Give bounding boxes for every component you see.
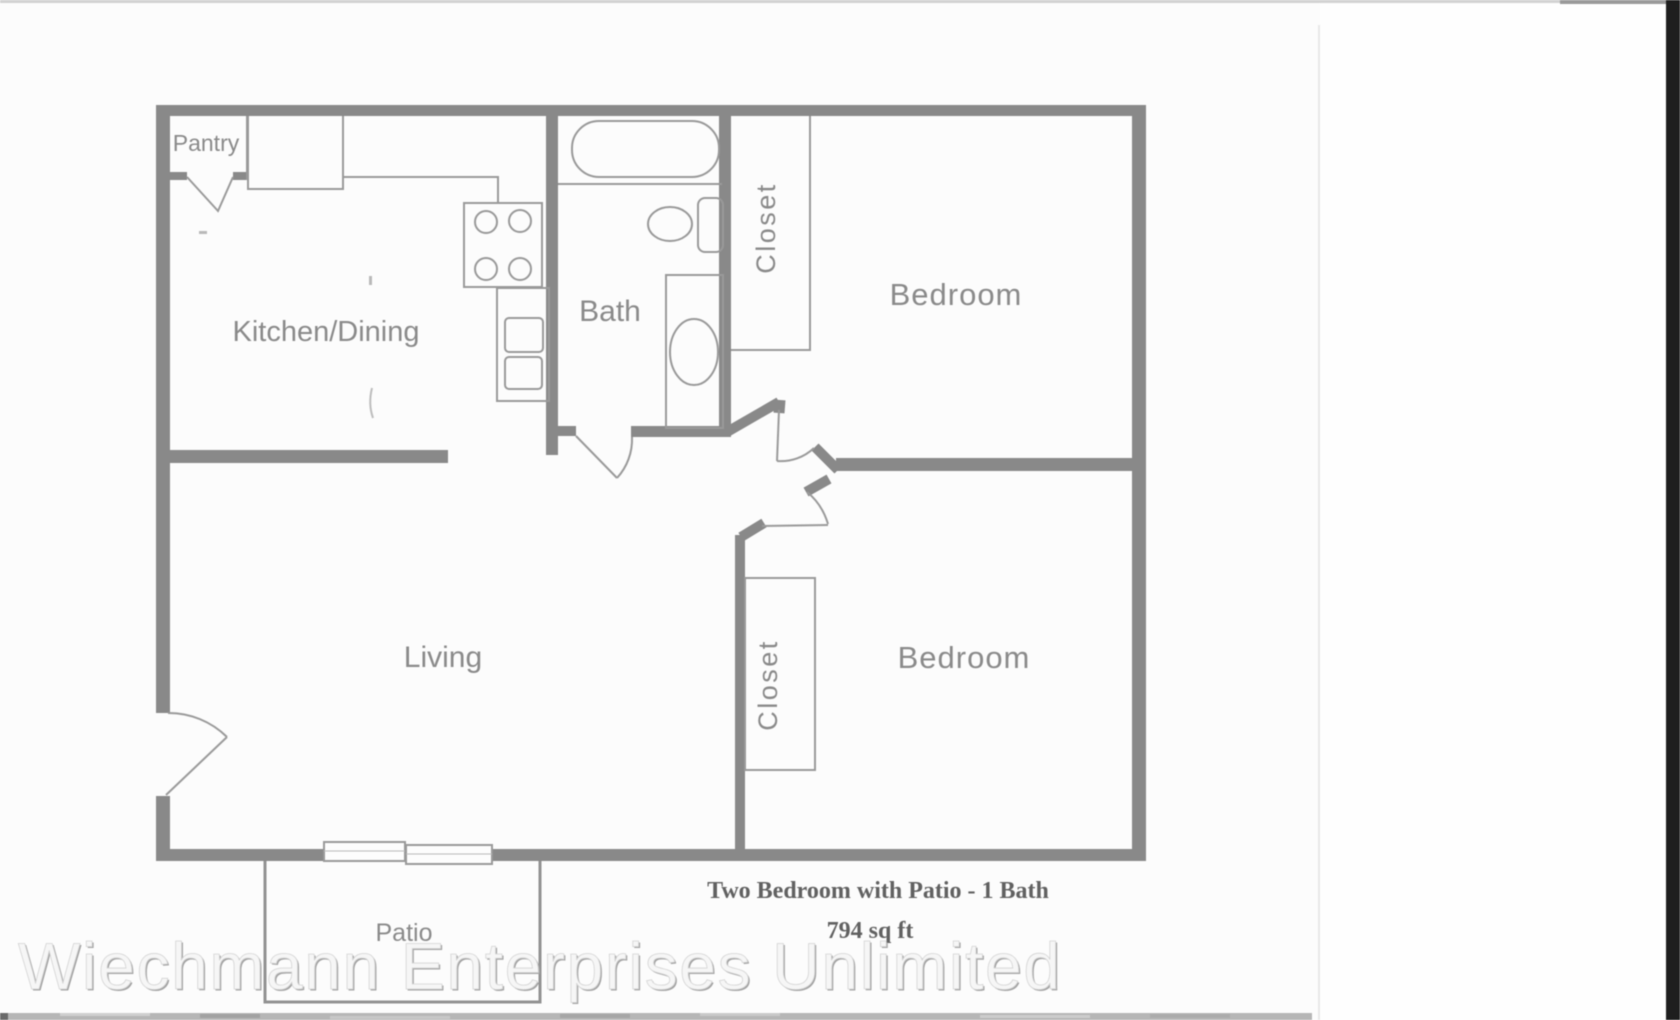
svg-text:Two Bedroom with Patio - 1 Bat: Two Bedroom with Patio - 1 Bath <box>707 878 1049 904</box>
svg-text:Closet: Closet <box>753 639 783 731</box>
svg-text:Bedroom: Bedroom <box>898 640 1031 675</box>
svg-text:Living: Living <box>404 641 482 674</box>
svg-text:Wiechmann Enterprises Unlimite: Wiechmann Enterprises Unlimited <box>18 929 1062 1003</box>
svg-text:Bedroom: Bedroom <box>890 277 1023 312</box>
svg-text:Closet: Closet <box>751 182 781 274</box>
svg-text:Kitchen/Dining: Kitchen/Dining <box>233 316 420 348</box>
svg-text:Bath: Bath <box>579 295 641 328</box>
svg-text:Pantry: Pantry <box>173 130 240 156</box>
